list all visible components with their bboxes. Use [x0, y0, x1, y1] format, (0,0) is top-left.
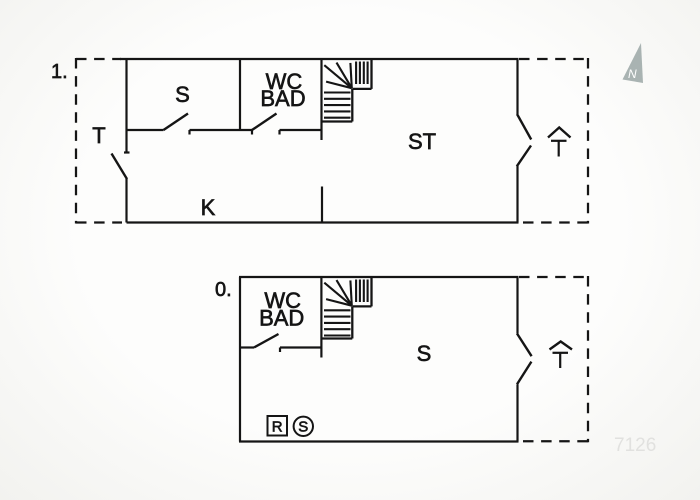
svg-text:ST: ST: [408, 129, 436, 154]
svg-text:S: S: [417, 341, 432, 366]
svg-text:1.: 1.: [51, 61, 68, 83]
svg-text:BAD: BAD: [260, 86, 305, 111]
svg-text:S: S: [175, 82, 190, 107]
svg-text:N: N: [628, 67, 637, 81]
svg-text:0.: 0.: [215, 279, 232, 301]
svg-text:K: K: [201, 195, 216, 220]
svg-text:T: T: [92, 123, 105, 148]
svg-text:BAD: BAD: [259, 305, 304, 330]
svg-text:R: R: [272, 419, 283, 436]
svg-text:7126: 7126: [614, 435, 656, 456]
svg-text:S: S: [298, 419, 308, 436]
